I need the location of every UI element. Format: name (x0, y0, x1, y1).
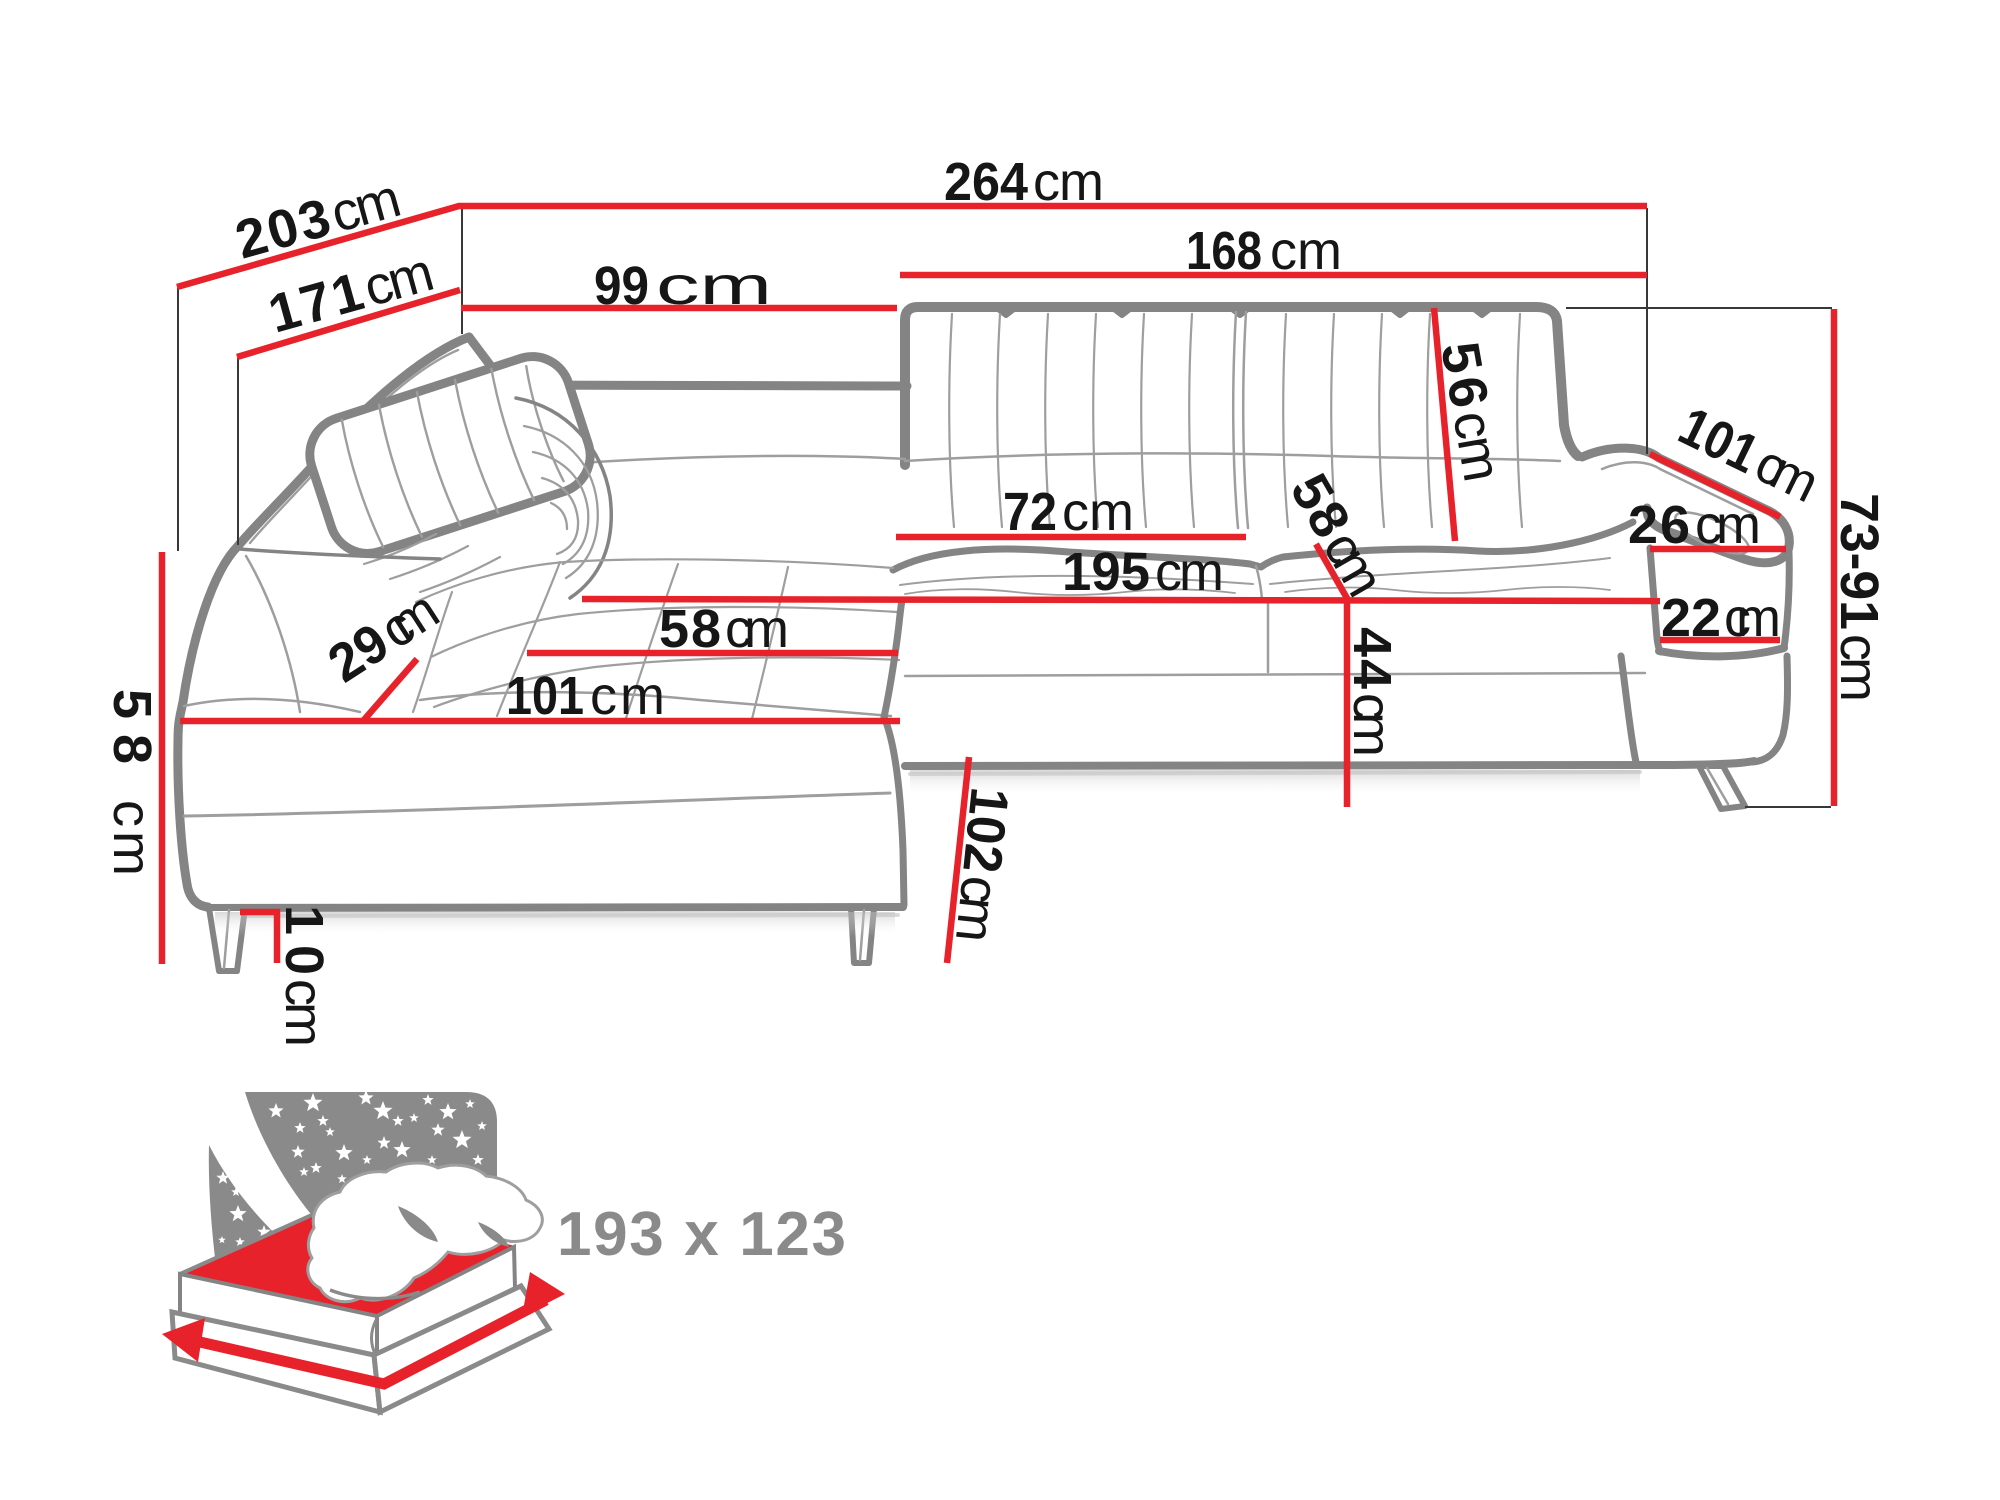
svg-text:cm: cm (656, 256, 772, 316)
svg-text:44: 44 (1342, 627, 1402, 689)
svg-text:22: 22 (1661, 588, 1721, 648)
svg-text:cm: cm (1033, 152, 1104, 212)
svg-text:cm: cm (102, 800, 162, 876)
svg-text:cm: cm (1155, 542, 1224, 602)
svg-text:195: 195 (1062, 542, 1150, 602)
svg-text:193 x 123: 193 x 123 (557, 1200, 846, 1269)
svg-text:cm: cm (1062, 482, 1134, 542)
svg-text:73-91: 73-91 (1829, 493, 1889, 630)
svg-text:cm: cm (1270, 221, 1342, 281)
svg-text:cm: cm (590, 666, 665, 726)
svg-text:101: 101 (506, 666, 584, 726)
svg-text:cm: cm (1829, 634, 1889, 702)
svg-text:58: 58 (659, 599, 721, 659)
svg-text:cm: cm (1724, 588, 1781, 648)
svg-text:168: 168 (1186, 221, 1262, 281)
svg-text:cm: cm (944, 873, 1011, 945)
svg-text:cm: cm (1342, 693, 1402, 757)
svg-text:99: 99 (594, 256, 649, 316)
svg-text:264: 264 (944, 152, 1028, 212)
svg-text:cm: cm (1441, 407, 1512, 486)
svg-text:cm: cm (1695, 495, 1761, 555)
svg-text:cm: cm (725, 599, 789, 659)
svg-text:102: 102 (951, 785, 1020, 876)
svg-text:cm: cm (274, 979, 334, 1047)
svg-text:72: 72 (1003, 482, 1057, 542)
svg-text:26: 26 (1628, 495, 1690, 555)
